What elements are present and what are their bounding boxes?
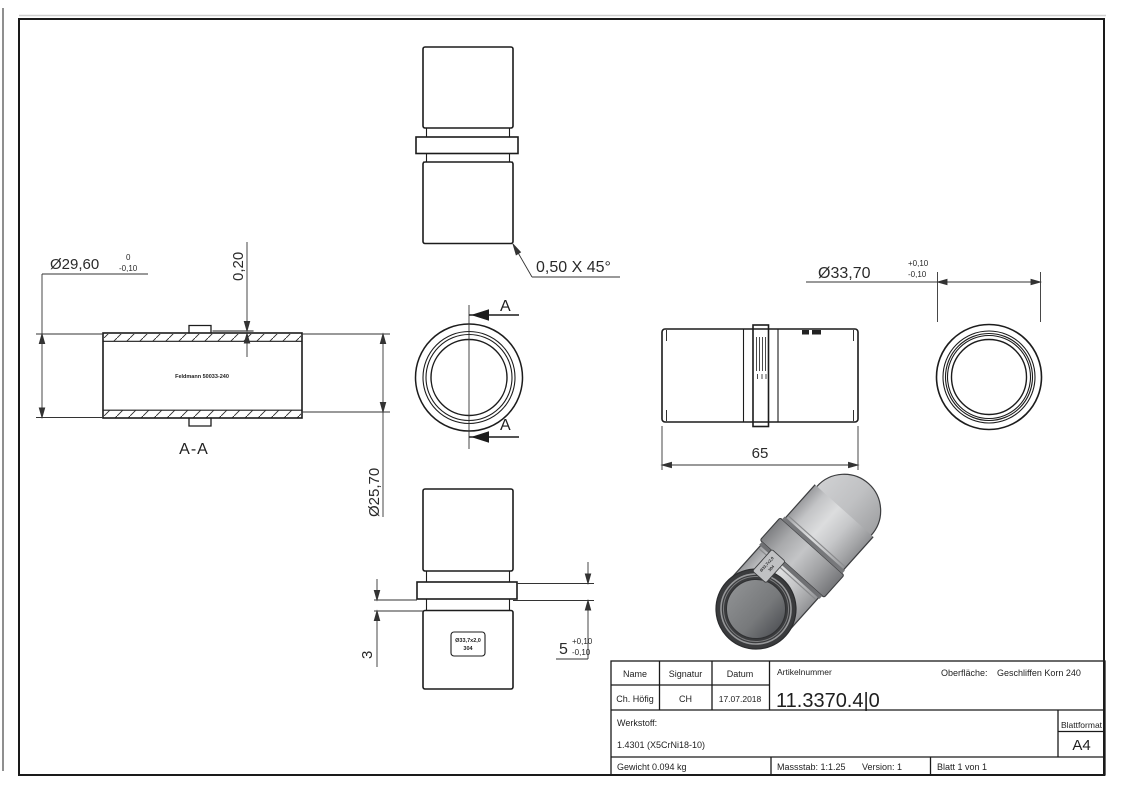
header-werkstoff: Werkstoff:: [617, 718, 657, 728]
tube-marking-line1: Ø33,7x2,0: [455, 638, 481, 644]
value-massstab: Massstab: 1:1.25: [777, 762, 846, 772]
tube-marking-line2: 304: [463, 646, 473, 652]
header-artikelnummer: Artikelnummer: [777, 667, 832, 677]
value-version: Version: 1: [862, 762, 902, 772]
value-datum: 17.07.2018: [719, 694, 762, 704]
dim-25-70-text: Ø25,70: [366, 468, 383, 517]
dim-5-tol-bottom: -0,10: [572, 648, 591, 657]
value-signatur: CH: [679, 694, 692, 704]
section-caption: A-A: [179, 441, 209, 458]
header-name: Name: [623, 669, 647, 679]
dim-3-text: 3: [359, 651, 376, 659]
value-blattformat: A4: [1072, 737, 1090, 754]
dim-33-70-text: Ø33,70: [818, 265, 871, 282]
dim-5-text: 5: [559, 641, 568, 658]
value-blatt: Blatt 1 von 1: [937, 762, 987, 772]
dim-29-60-tol-top: 0: [126, 253, 131, 262]
header-blattformat: Blattformat: [1061, 720, 1103, 730]
drawing-sheet: Feldmann 50033-240 A-A Ø29,60 0 -0,10 0,…: [0, 0, 1123, 794]
dim-29-60-text: Ø29,60: [50, 256, 99, 273]
dim-33-70-tol-top: +0,10: [908, 259, 929, 268]
hatch-top-wall: [104, 334, 301, 341]
chamfer-text: 0,50 X 45°: [536, 259, 611, 276]
dim-5-tol-top: +0,10: [572, 637, 593, 646]
edge-marking-tick: [812, 330, 821, 335]
edge-marking-tick: [802, 330, 809, 335]
value-oberflaeche: Geschliffen Korn 240: [997, 668, 1081, 678]
dim-33-70-tol-bottom: -0,10: [908, 270, 927, 279]
section-arrow-label-top: A: [500, 298, 511, 315]
dim-0-20-text: 0,20: [230, 252, 247, 281]
header-signatur: Signatur: [669, 669, 703, 679]
section-marking-text: Feldmann 50033-240: [175, 374, 229, 380]
hatch-bottom-wall: [104, 411, 301, 418]
value-gewicht: Gewicht 0.094 kg: [617, 762, 687, 772]
dim-65-text: 65: [752, 445, 769, 462]
dim-29-60-tol-bottom: -0,10: [119, 264, 138, 273]
header-oberflaeche: Oberfläche:: [941, 668, 988, 678]
header-datum: Datum: [727, 669, 754, 679]
section-arrow-label-bottom: A: [500, 417, 511, 434]
value-name: Ch. Höfig: [616, 694, 654, 704]
value-werkstoff: 1.4301 (X5CrNi18-10): [617, 740, 705, 750]
value-artikelnummer[interactable]: 11.3370.4|0: [776, 690, 880, 712]
